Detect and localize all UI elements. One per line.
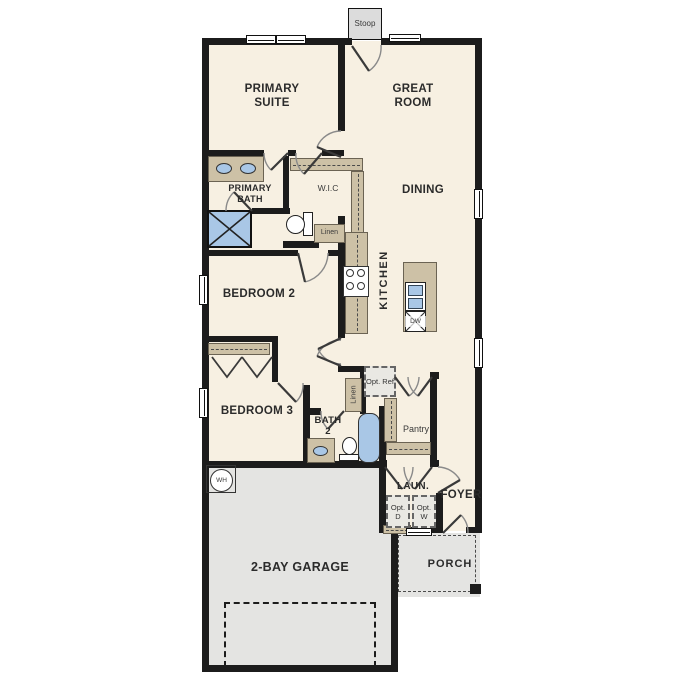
burner [346, 282, 354, 290]
toilet-tank-bath2 [339, 454, 359, 461]
wall [202, 38, 209, 672]
sink-basin [408, 285, 423, 296]
primary-suite-label: PRIMARY SUITE [232, 80, 312, 114]
wall [288, 150, 296, 156]
kitchen-label: KITCHEN [377, 250, 391, 310]
toilet-bowl-primary [286, 215, 305, 234]
bath2-sink [313, 446, 328, 456]
porch-column [470, 584, 481, 594]
wic-shelf-top [290, 158, 363, 171]
dishwasher-label: DW [405, 316, 426, 327]
window [474, 189, 483, 219]
wall [328, 250, 340, 256]
shower [207, 210, 252, 248]
wall [430, 372, 437, 467]
stoop-label: Stoop [348, 8, 382, 40]
dining-label: DINING [396, 184, 450, 198]
vanity-sink-left [216, 163, 232, 174]
vanity-sink-right [240, 163, 256, 174]
window [474, 338, 483, 368]
foyer-label: FOYER [438, 489, 484, 503]
bedroom3-closet-shelf [208, 343, 270, 355]
wall [379, 460, 387, 467]
wall [252, 208, 290, 214]
bathtub [358, 413, 380, 463]
optional-washer-box: Opt. W [412, 495, 436, 528]
wall [322, 150, 344, 156]
optional-fridge-box: Opt. Ref [364, 366, 396, 397]
opt-washer-label: Opt. W [414, 503, 434, 521]
window [199, 275, 208, 305]
linen-hall-label: Linen [314, 224, 345, 243]
wall [430, 460, 439, 467]
pantry-shelf-side [384, 398, 397, 442]
primary-bath-label: PRIMARY BATH [220, 182, 280, 206]
window [199, 388, 208, 418]
wall [391, 527, 398, 672]
wic-label: W.I.C [306, 182, 350, 195]
garage-label: 2-BAY GARAGE [243, 548, 357, 586]
linen-bath-label: Linen [348, 379, 361, 411]
wall [475, 38, 482, 533]
wall [283, 156, 289, 210]
window [246, 35, 276, 44]
toilet-bowl-bath2 [342, 437, 357, 455]
optional-dryer-box: Opt. D [386, 495, 410, 528]
opt-ref-label: Opt. Ref [366, 377, 394, 386]
sink-basin [408, 298, 423, 309]
window [276, 35, 306, 44]
water-heater-label: WH [210, 469, 233, 492]
wall [202, 336, 278, 342]
porch-label: PORCH [415, 557, 485, 571]
opt-dryer-label: Opt. D [388, 503, 408, 521]
great-room-label: GREAT ROOM [381, 80, 445, 114]
burner [346, 269, 354, 277]
wall [202, 250, 298, 256]
window [406, 528, 432, 536]
floor-plan: Opt. Ref Opt. D Opt. W [0, 0, 687, 687]
bedroom2-label: BEDROOM 2 [216, 288, 302, 302]
burner [357, 269, 365, 277]
wall [272, 336, 278, 382]
bedroom3-label: BEDROOM 3 [212, 405, 302, 419]
window [389, 34, 421, 42]
pantry-shelf-bottom [386, 442, 431, 455]
wall [338, 38, 345, 131]
pantry-label: Pantry [391, 423, 441, 435]
burner [357, 282, 365, 290]
bath2-label: BATH 2 [311, 414, 345, 438]
laundry-label: LAUN. [390, 480, 436, 493]
garage-door-dashed [224, 602, 376, 667]
wall [466, 527, 482, 533]
